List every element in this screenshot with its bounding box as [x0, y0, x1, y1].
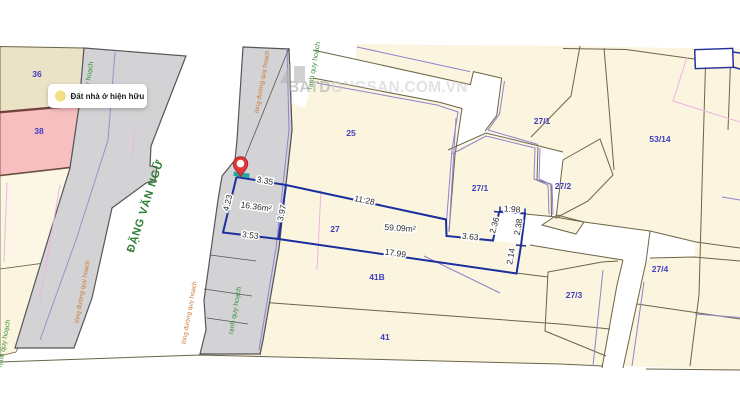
- svg-text:25: 25: [346, 128, 356, 138]
- svg-text:3:53: 3:53: [242, 229, 260, 241]
- svg-text:38: 38: [34, 126, 44, 136]
- svg-text:27/4: 27/4: [652, 264, 669, 274]
- svg-text:41B: 41B: [369, 272, 385, 282]
- svg-text:1:98: 1:98: [504, 203, 521, 214]
- svg-text:36: 36: [32, 69, 42, 79]
- svg-text:27/2: 27/2: [555, 181, 572, 191]
- svg-text:27/1: 27/1: [534, 116, 551, 126]
- svg-text:27/3: 27/3: [566, 290, 583, 300]
- svg-text:Đất nhà ở hiện hữu: Đất nhà ở hiện hữu: [71, 92, 145, 101]
- svg-text:27/1: 27/1: [472, 183, 489, 193]
- svg-text:41: 41: [380, 332, 390, 342]
- svg-text:27: 27: [330, 224, 340, 234]
- svg-text:3.63: 3.63: [462, 231, 480, 243]
- svg-text:53/14: 53/14: [649, 134, 671, 144]
